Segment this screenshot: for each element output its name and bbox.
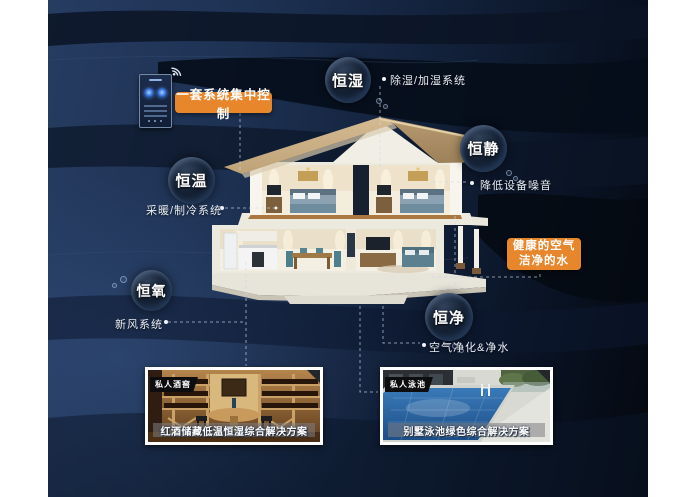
card-fold-corner (537, 370, 550, 383)
wine-cellar-card: 私人酒窖 红酒储藏低温恒湿综合解决方案 (145, 367, 323, 445)
callout-dehumidify: 除湿/加湿系统 (390, 72, 466, 88)
bubble-constant-temperature: 恒温 (168, 157, 215, 204)
healthy-air-badge: 健康的空气 洁净的水 (507, 238, 581, 270)
callout-heating: 采暖/制冷系统 (146, 202, 216, 218)
bubble-constant-oxygen: 恒氧 (131, 270, 172, 311)
bubble-constant-humidity: 恒湿 (325, 57, 371, 103)
pool-photo: 私人泳池 别墅泳池绿色综合解决方案 (383, 370, 550, 442)
wine-cellar-caption: 红酒储藏低温恒湿综合解决方案 (153, 423, 315, 437)
healthy-air-line1: 健康的空气 (513, 239, 576, 254)
decorative-bubble (383, 104, 388, 109)
pool-tag: 私人泳池 (385, 377, 433, 392)
device-row (144, 115, 167, 117)
device-dial-left (144, 88, 154, 98)
bubble-label: 恒净 (433, 307, 465, 328)
decorative-bubble (112, 283, 117, 288)
central-control-badge: 一套系统集中控制 (175, 92, 272, 113)
device-row (144, 110, 167, 112)
bubble-constant-clean: 恒净 (425, 293, 473, 341)
pool-caption: 别墅泳池绿色综合解决方案 (388, 423, 545, 437)
card-fold-corner (307, 370, 320, 383)
dark-stage: 一套系统集中控制 健康的空气 洁净的水 恒湿 恒静 恒温 恒氧 恒净 (48, 0, 648, 497)
bubble-label: 恒温 (175, 170, 207, 191)
callout-fresh-air: 新风系统 (115, 316, 163, 332)
infographic-canvas: 一套系统集中控制 健康的空气 洁净的水 恒湿 恒静 恒温 恒氧 恒净 (0, 0, 700, 497)
decorative-bubble (120, 276, 127, 283)
bubble-constant-quiet: 恒静 (460, 125, 507, 172)
wine-cellar-photo: 私人酒窖 红酒储藏低温恒湿综合解决方案 (148, 370, 320, 442)
device-row (144, 105, 167, 107)
device-dial-right (157, 88, 167, 98)
bubble-label: 恒静 (467, 138, 499, 159)
decorative-bubble (506, 170, 512, 176)
pool-card: 私人泳池 别墅泳池绿色综合解决方案 (380, 367, 553, 445)
wine-cellar-tag: 私人酒窖 (150, 377, 198, 392)
decorative-bubble (376, 98, 382, 104)
device-header (149, 79, 162, 81)
central-control-text: 一套系统集中控制 (175, 84, 272, 122)
bubble-label: 恒湿 (332, 70, 364, 91)
bubble-label: 恒氧 (137, 281, 167, 301)
callout-purification: 空气净化&净水 (429, 339, 509, 355)
control-panel-device (139, 74, 172, 128)
device-buttons (148, 120, 163, 122)
callout-noise: 降低设备噪音 (480, 177, 552, 193)
healthy-air-line2: 洁净的水 (519, 254, 569, 269)
